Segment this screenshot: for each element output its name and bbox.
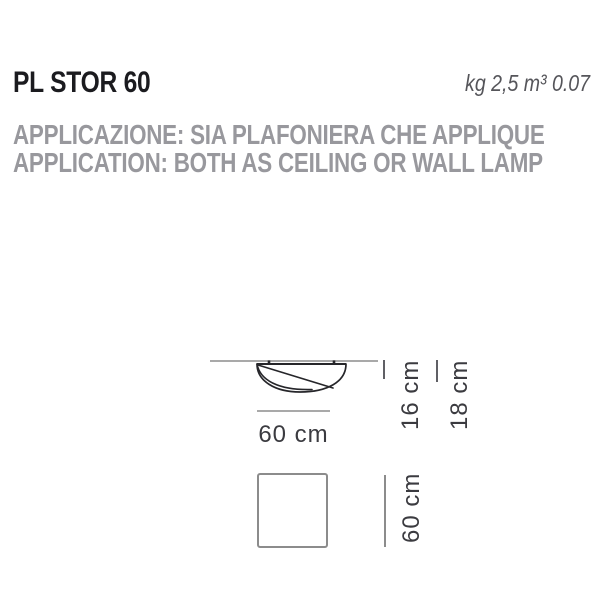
total-height-tick bbox=[436, 360, 438, 382]
diameter-label: 60 cm bbox=[237, 421, 350, 449]
body-height-tick bbox=[383, 360, 385, 379]
application-text-block: APPLICAZIONE: SIA PLAFONIERA CHE APPLIQU… bbox=[13, 121, 600, 176]
application-line-italian: APPLICAZIONE: SIA PLAFONIERA CHE APPLIQU… bbox=[13, 121, 545, 149]
lamp-side-profile-icon bbox=[250, 358, 360, 400]
product-code-title: PL STOR 60 bbox=[13, 66, 150, 100]
application-line-english: APPLICATION: BOTH AS CEILING OR WALL LAM… bbox=[13, 149, 545, 177]
weight-volume-spec: kg 2,5 m³ 0.07 bbox=[465, 70, 590, 97]
plan-height-dimension-line bbox=[384, 475, 386, 547]
diameter-dimension-line bbox=[257, 410, 330, 412]
body-height-label: 16 cm bbox=[398, 358, 424, 430]
catalog-page: PL STOR 60 kg 2,5 m³ 0.07 APPLICAZIONE: … bbox=[0, 0, 600, 600]
lamp-plan-outline bbox=[257, 473, 328, 548]
plan-side-label: 60 cm bbox=[399, 475, 425, 543]
total-height-label: 18 cm bbox=[447, 358, 473, 430]
